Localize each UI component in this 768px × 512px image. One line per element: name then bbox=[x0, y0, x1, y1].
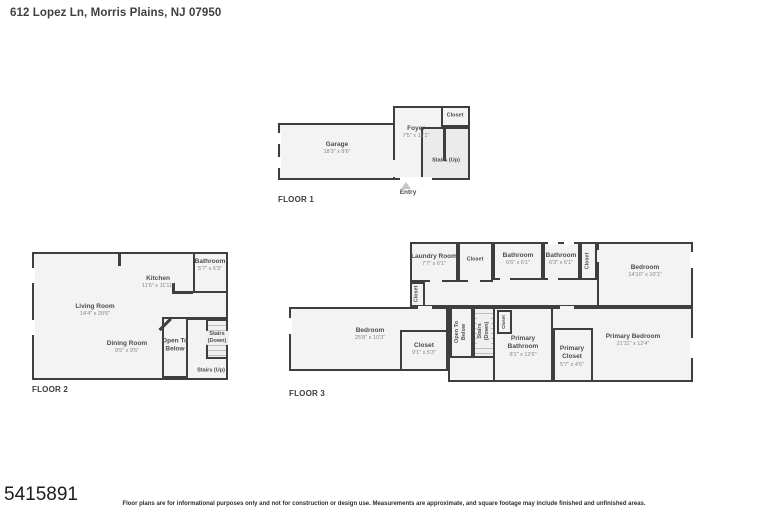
label-primary-bathroom: Primary Bathroom 8'1" x 12'6" bbox=[497, 335, 549, 359]
label-primary-closet: Primary Closet 5'7" x 4'5" bbox=[556, 345, 588, 369]
bath-entry-wall-h bbox=[172, 291, 193, 294]
label-kitchen: Kitchen 11'6" x 11'11" bbox=[142, 275, 174, 291]
window-gap bbox=[564, 242, 574, 245]
page-title: 612 Lopez Ln, Morris Plains, NJ 07950 bbox=[10, 7, 221, 19]
label-closet-small: Closet bbox=[501, 315, 507, 329]
door-gap bbox=[500, 278, 510, 282]
label-garage: Garage 18'3" x 8'6" bbox=[323, 141, 350, 157]
window-gap bbox=[289, 318, 292, 334]
label-bedroom2: Bedroom 14'10" x 10'1" bbox=[628, 264, 661, 280]
label-closet-hall: Closet bbox=[413, 286, 420, 303]
window-gap bbox=[548, 242, 558, 245]
label-stairs-down-f3: Stairs (Down) bbox=[477, 317, 491, 345]
label-foyer: Foyer 7'5" x 11'1" bbox=[403, 125, 430, 141]
window-gap bbox=[690, 338, 693, 358]
door-gap bbox=[418, 306, 432, 310]
label-primary-bedroom: Primary Bedroom 21'11" x 12'4" bbox=[606, 333, 661, 349]
window-gap bbox=[278, 157, 281, 168]
stair-rail bbox=[443, 127, 446, 161]
label-bathroom2-f3: Bathroom 6'3" x 6'1" bbox=[546, 252, 577, 268]
window-gap bbox=[690, 252, 693, 268]
door-gap bbox=[597, 250, 601, 262]
label-stairs-down-f2: Stairs (Down) bbox=[205, 331, 229, 345]
label-stairs-up-f2: Stairs (Up) bbox=[197, 367, 225, 374]
label-open-below-f3: Open To Below bbox=[454, 315, 468, 349]
label-closet-f1: Closet bbox=[447, 112, 464, 119]
label-closet-bedroom: Closet 9'1" x 5'3" bbox=[412, 342, 436, 358]
label-dining-room: Dining Room 9'5" x 9'5" bbox=[107, 340, 147, 356]
label-open-below-f2: Open To Below bbox=[160, 338, 190, 355]
entry-opening bbox=[400, 177, 432, 181]
label-laundry: Laundry Room 7'7" x 6'1" bbox=[411, 253, 457, 269]
label-stairs-f1: Stairs (Up) bbox=[432, 157, 460, 164]
door-gap bbox=[393, 160, 397, 177]
kitchen-wall-stub bbox=[118, 252, 121, 266]
label-entry: Entry bbox=[400, 189, 417, 197]
window-gap bbox=[32, 320, 35, 335]
label-bedroom1: Bedroom 25'8" x 10'3" bbox=[355, 327, 385, 343]
label-closet-strip: Closet bbox=[584, 253, 591, 270]
door-gap bbox=[548, 278, 558, 282]
floor-2-title: FLOOR 2 bbox=[32, 385, 68, 394]
label-bathroom1-f3: Bathroom 6'6" x 6'1" bbox=[503, 252, 534, 268]
label-bathroom-f2: Bathroom 5'7" x 6'3" bbox=[195, 258, 226, 274]
door-gap bbox=[468, 280, 480, 284]
window-gap bbox=[32, 268, 35, 283]
floor-3-title: FLOOR 3 bbox=[289, 389, 325, 398]
door-gap bbox=[560, 306, 574, 310]
label-living-room: Living Room 14'4" x 20'6" bbox=[75, 303, 114, 319]
window-gap bbox=[278, 133, 281, 144]
door-gap bbox=[430, 280, 442, 284]
label-closet-top: Closet bbox=[467, 256, 484, 263]
footer-disclaimer: Floor plans are for informational purpos… bbox=[0, 501, 768, 507]
floor-1-title: FLOOR 1 bbox=[278, 195, 314, 204]
